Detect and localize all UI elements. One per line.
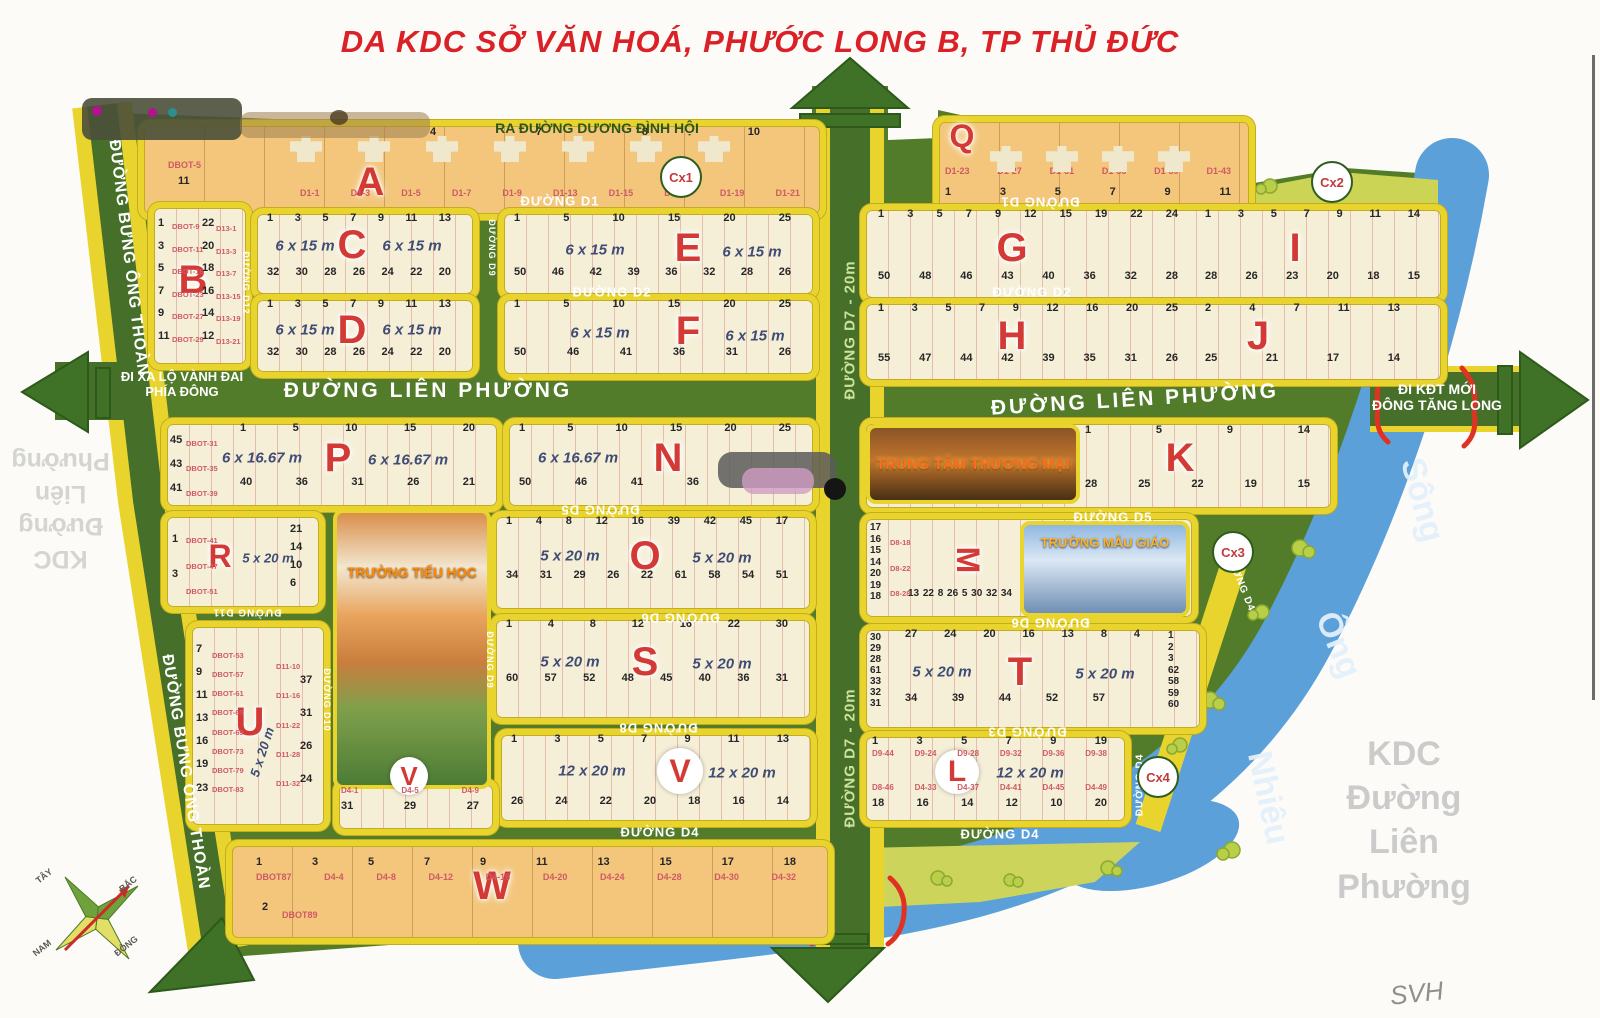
block-R-left-nums: 1 3	[172, 522, 178, 592]
block-J-top: 2 4 7 11 13	[1205, 302, 1400, 314]
block-K-letter: K	[1166, 438, 1195, 478]
block-C-top: 1 3 5 7 9 11 13	[267, 212, 451, 224]
block-C-bottom: 32 30 28 26 24 22 20	[267, 266, 451, 278]
school-photo: TRƯỜNG TIỂU HỌC	[333, 509, 491, 789]
block-N-top: 1 5 10 15 20 25	[519, 422, 791, 434]
cx1-label: Cx1	[669, 170, 693, 185]
exit-east-line2: ĐÔNG TĂNG LONG	[1372, 397, 1502, 413]
block-K-top: 1 5 9 14	[1085, 424, 1310, 436]
block-H-bottom: 55 47 44 42 39 35 31 26	[878, 352, 1178, 364]
block-B-col2: DBOT-9 DBOT-11 DBOT-19 DBOT-23 DBOT-27 D…	[172, 216, 204, 351]
block-S-dim-2: 5 x 20 m	[692, 656, 751, 673]
block-L-top-lots: D9-44 D9-24 D9-28 D9-32 D9-36 D9-38	[872, 749, 1107, 758]
scan-dot-magenta-2	[148, 108, 157, 117]
watermark-line: Đường	[1322, 776, 1486, 820]
block-D-letter: D	[338, 310, 367, 350]
redaction-dot	[824, 478, 846, 500]
scan-spot-top	[330, 110, 348, 125]
block-P-letter: P	[325, 438, 352, 478]
block-I-bottom: 28 26 23 20 18 15	[1205, 270, 1420, 282]
block-M-mid-nums: 13 22 8 26 5 30 32 34	[908, 588, 1012, 599]
block-C-dim-1: 6 x 15 m	[275, 238, 334, 255]
block-D-dim-1: 6 x 15 m	[275, 322, 334, 339]
block-H-letter: H	[998, 316, 1027, 356]
exit-north-label: RA ĐƯỜNG DƯƠNG ĐÌNH HỘI	[495, 120, 699, 136]
school-label: TRƯỜNG TIỂU HỌC	[347, 565, 476, 580]
block-L-dim: 12 x 20 m	[996, 765, 1064, 782]
road-label-lien-phuong-left: ĐƯỜNG LIÊN PHƯỜNG	[284, 379, 573, 403]
road-label-d4-right: ĐƯỜNG D4	[961, 827, 1040, 842]
block-Q-numbers: 1 3 5 7 9 11	[945, 186, 1231, 198]
watermark-left: KDC Đường Liên Phường	[8, 445, 113, 575]
kindergarten-photo: TRƯỜNG MẪU GIÁO	[1020, 521, 1190, 617]
cx4-label: Cx4	[1146, 770, 1170, 785]
block-D-top: 1 3 5 7 9 11 13	[267, 298, 451, 310]
block-E-bottom: 50 46 42 39 36 32 28 26	[514, 266, 791, 278]
road-label-d10: ĐƯỜNG D10	[322, 668, 332, 731]
block-M-left-nums: 17 16 15 14 20 19 18	[870, 522, 881, 603]
block-L-bottom-lots: D8-46 D4-33 D4-37 D4-41 D4-45 D4-49	[872, 783, 1107, 792]
block-V-bottom: 26 24 22 20 18 16 14	[511, 795, 789, 807]
block-O-top: 1 4 8 12 16 39 42 45 17	[506, 515, 788, 527]
kindergarten-label: TRƯỜNG MẪU GIÁO	[1041, 535, 1170, 550]
road-label-d2-right: ĐƯỜNG D2	[993, 285, 1072, 300]
road-label-d11: ĐƯỜNG D11	[213, 607, 282, 618]
block-V-left-lots: D4-1 D4-5 D4-9	[341, 786, 479, 795]
block-V-left-nums: 31 29 27	[341, 800, 479, 812]
block-F-dim-1: 6 x 15 m	[570, 325, 629, 342]
block-U-left-lots: DBOT-53 DBOT-57 DBOT-61 DBOT-65 DBOT-69 …	[212, 646, 244, 799]
subdivision-map: DA KDC SỞ VĂN HOÁ, PHƯỚC LONG B, TP THỦ …	[0, 0, 1600, 1018]
road-label-d7-lower: ĐƯỜNG D7 - 20m	[842, 688, 859, 827]
north-arrow	[792, 58, 908, 127]
block-J-bottom: 25 21 17 14	[1205, 352, 1400, 364]
block-J-letter: J	[1247, 316, 1269, 356]
exit-east-label: ĐI KĐT MỚI ĐÔNG TĂNG LONG	[1372, 381, 1502, 413]
block-B-col3: 22 20 18 16 14 12	[202, 212, 214, 347]
cx2-label: Cx2	[1320, 175, 1344, 190]
block-W-lots: DBOT87 D4-4 D4-8 D4-12 D4-16 D4-20 D4-24…	[256, 872, 796, 882]
scan-edge	[1592, 55, 1595, 700]
watermark-line: Đường	[8, 510, 113, 543]
block-K-bottom: 28 25 22 19 15	[1085, 478, 1310, 490]
watermark-line: Phường	[1322, 865, 1486, 909]
watermark-line: Phường	[8, 445, 113, 478]
block-V-letter-chip: V	[657, 748, 703, 794]
block-T-dim-1: 5 x 20 m	[912, 664, 971, 681]
block-C-dim-2: 6 x 15 m	[382, 238, 441, 255]
block-O-dim-2: 5 x 20 m	[692, 550, 751, 567]
block-R-right-nums: 21 14 10 6	[290, 520, 302, 593]
exit-east-line1: ĐI KĐT MỚI	[1372, 381, 1502, 397]
road-label-d6-left: ĐƯỜNG D6	[641, 611, 720, 626]
block-S-bottom: 60 57 52 48 45 40 36 31	[506, 672, 788, 684]
road-label-d1-right: ĐƯỜNG D1	[1001, 195, 1080, 210]
road-label-d5-left: ĐƯỜNG D5	[561, 503, 640, 518]
block-S-dim-1: 5 x 20 m	[540, 654, 599, 671]
block-W-numbers: 1 3 5 7 9 11 13 15 17 18	[256, 856, 796, 868]
block-N-dim: 6 x 16.67 m	[538, 450, 618, 467]
block-B-col1: 1 3 5 7 9 11	[158, 212, 170, 347]
block-D-bottom: 32 30 28 26 24 22 20	[267, 346, 451, 358]
watermark-line: Liên	[8, 478, 113, 511]
block-G-letter: G	[996, 228, 1027, 268]
block-O-dim-1: 5 x 20 m	[540, 548, 599, 565]
cx2-circle: Cx2	[1311, 161, 1353, 203]
exit-west-line1: ĐI XA LỘ VÀNH ĐAI	[121, 369, 243, 384]
block-U-right-nums: 37 31 26 24	[300, 664, 312, 796]
cx3-circle: Cx3	[1212, 531, 1254, 573]
block-W-second-lot: DBOT89	[282, 902, 318, 929]
scan-dot-teal	[168, 108, 177, 117]
exit-west-line2: PHÍA ĐÔNG	[121, 384, 243, 399]
cx3-label: Cx3	[1221, 545, 1245, 560]
block-E-letter: E	[675, 228, 702, 268]
block-D-dim-2: 6 x 15 m	[382, 322, 441, 339]
block-T-bottom: 34 39 44 52 57	[905, 692, 1105, 704]
road-label-d4-left: ĐƯỜNG D4	[621, 825, 700, 840]
road-label-d6-right: ĐƯỜNG D6	[1011, 616, 1090, 631]
block-E-dim-2: 6 x 15 m	[722, 244, 781, 261]
exit-west-label: ĐI XA LỘ VÀNH ĐAI PHÍA ĐÔNG	[121, 369, 243, 399]
block-E-top: 1 5 10 15 20 25	[514, 212, 791, 224]
block-P-top: 1 5 10 15 20	[240, 422, 475, 434]
scan-dot-magenta-1	[92, 106, 102, 116]
watermark-line: KDC	[1322, 732, 1486, 776]
block-Q-letter: Q	[950, 120, 975, 152]
block-V-dim-1: 12 x 20 m	[558, 763, 626, 780]
redaction-pink	[742, 468, 814, 494]
block-F-letter: F	[676, 311, 700, 351]
road-label-d9-upper: ĐƯỜNG D9	[487, 219, 497, 276]
block-V-dim-2: 12 x 20 m	[708, 765, 776, 782]
cx4-circle: Cx4	[1137, 756, 1179, 798]
block-U-left-nums: 7 9 11 13 16 19 23	[196, 638, 208, 800]
road-label-d12: ĐƯỜNG D12	[241, 251, 251, 314]
block-G-top: 1 3 5 7 9 12 15 19 22 24	[878, 208, 1178, 220]
block-B-col4: D13-1 D13-3 D13-7 D13-15 D13-19 D13-21	[216, 218, 241, 353]
block-T-left-nums: 30 29 28 61 33 32 31	[870, 632, 881, 709]
block-O-bottom: 34 31 29 26 22 61 58 54 51	[506, 569, 788, 581]
road-label-d3-right: ĐƯỜNG D3	[988, 725, 1067, 740]
block-F-dim-2: 6 x 15 m	[725, 328, 784, 345]
block-T-letter: T	[1008, 652, 1032, 692]
scan-smudge-topleft	[82, 98, 242, 140]
block-U-right-lots: D11-10 D11-16 D11-22 D11-28 D11-32	[276, 652, 300, 798]
watermark-right: KDC Đường Liên Phường	[1322, 732, 1486, 909]
block-L-bottom: 18 16 14 12 10 20	[872, 797, 1107, 809]
block-P-left-nums: 45 43 41	[170, 428, 182, 501]
block-T-dim-2: 5 x 20 m	[1075, 666, 1134, 683]
block-N-bottom: 50 46 41 36	[519, 476, 699, 488]
block-W-second-num: 2	[262, 896, 268, 918]
cx1-circle: Cx1	[660, 156, 702, 198]
block-A-note-num: 11	[178, 170, 190, 192]
block-V-letter: V	[669, 753, 690, 790]
block-T-right-nums: 1 2 3 62 58 59 60	[1168, 630, 1179, 711]
block-I-top: 1 3 5 7 9 11 14	[1205, 208, 1420, 220]
block-F-top: 1 5 10 15 20 25	[514, 298, 791, 310]
block-C-letter: C	[338, 225, 367, 265]
mall-photo: TRUNG TÂM THƯƠNG MẠI	[866, 424, 1080, 504]
block-P-bottom: 40 36 31 26 21	[240, 476, 475, 488]
block-P-left-lots: DBOT-31 DBOT-35 DBOT-39	[186, 432, 218, 506]
block-H-top: 1 3 5 7 9 12 16 20 25	[878, 302, 1178, 314]
road-label-d9-lower: ĐƯỜNG D9	[485, 631, 495, 688]
block-P-dim-2: 6 x 16.67 m	[368, 452, 448, 469]
road-label-d5-right: ĐƯỜNG D5	[1074, 510, 1153, 525]
map-title: DA KDC SỞ VĂN HOÁ, PHƯỚC LONG B, TP THỦ …	[341, 24, 1180, 60]
watermark-line: Liên	[1322, 820, 1486, 864]
road-label-d2-left: ĐƯỜNG D2	[573, 285, 652, 300]
road-label-d7-upper: ĐƯỜNG D7 - 20m	[842, 260, 859, 399]
block-R-left-lots: DBOT-41 DBOT-47 DBOT-51	[186, 528, 218, 605]
watermark-line: KDC	[8, 543, 113, 576]
block-M-letter: M	[952, 547, 984, 574]
block-P-dim-1: 6 x 16.67 m	[222, 450, 302, 467]
block-R-dim: 5 x 20 m	[242, 551, 293, 566]
block-N-letter: N	[654, 438, 683, 478]
block-I-letter: I	[1289, 228, 1300, 268]
block-Q-lots: D1-23 D1-27 D1-31 D1-35 D1-39 D1-43	[945, 166, 1231, 176]
block-G-bottom: 50 48 46 43 40 36 32 28	[878, 270, 1178, 282]
block-E-dim-1: 6 x 15 m	[565, 242, 624, 259]
road-label-d1-left: ĐƯỜNG D1	[521, 194, 600, 209]
block-F-bottom: 50 46 41 36 31 26	[514, 346, 791, 358]
signature: SVH	[1389, 975, 1445, 1011]
mall-label: TRUNG TÂM THƯƠNG MẠI	[876, 456, 1070, 473]
road-label-d8-left: ĐƯỜNG D8	[619, 721, 698, 736]
